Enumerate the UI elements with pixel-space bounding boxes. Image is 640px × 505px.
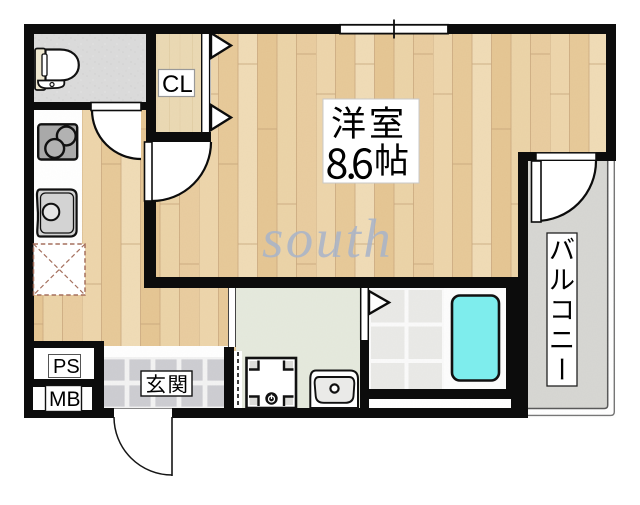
- svg-text:south: south: [262, 208, 393, 269]
- svg-text:PS: PS: [53, 356, 80, 378]
- svg-text:CL: CL: [162, 71, 193, 98]
- svg-text:MB: MB: [49, 388, 81, 411]
